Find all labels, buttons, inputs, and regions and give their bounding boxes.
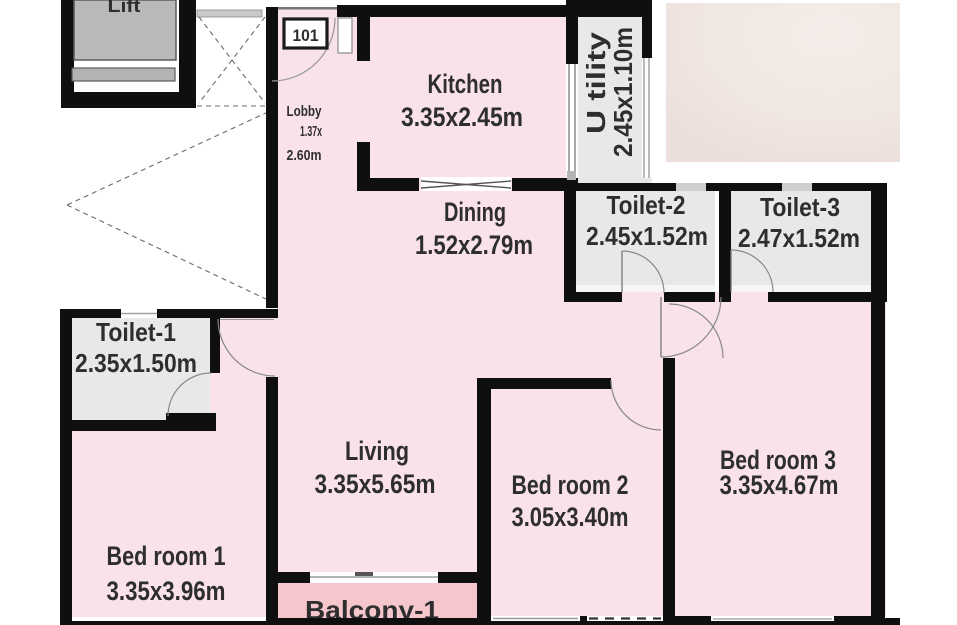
svg-text:3.35x2.45m: 3.35x2.45m	[401, 102, 523, 132]
svg-text:Toilet-3: Toilet-3	[760, 192, 840, 222]
svg-text:3.35x4.67m: 3.35x4.67m	[720, 470, 839, 500]
svg-text:Lobby: Lobby	[287, 103, 323, 120]
svg-text:2.45x1.52m: 2.45x1.52m	[586, 221, 708, 251]
svg-text:3.35x3.96m: 3.35x3.96m	[107, 576, 226, 606]
svg-text:2.60m: 2.60m	[287, 147, 322, 164]
svg-text:Toilet-1: Toilet-1	[96, 317, 176, 347]
svg-text:Toilet-2: Toilet-2	[607, 190, 686, 220]
svg-text:3.35x5.65m: 3.35x5.65m	[315, 469, 436, 499]
svg-text:1.52x2.79m: 1.52x2.79m	[415, 230, 533, 260]
svg-text:Kitchen: Kitchen	[428, 69, 503, 99]
svg-text:2.45x1.10m: 2.45x1.10m	[608, 27, 638, 157]
svg-text:Living: Living	[345, 436, 409, 466]
svg-text:U tility: U tility	[581, 31, 611, 134]
svg-text:Lift: Lift	[108, 0, 141, 16]
svg-text:3.05x3.40m: 3.05x3.40m	[512, 502, 629, 532]
svg-text:Bed room 1: Bed room 1	[107, 541, 226, 571]
svg-text:1.37x: 1.37x	[300, 123, 322, 140]
svg-text:Bed room 2: Bed room 2	[512, 470, 629, 500]
svg-text:101: 101	[293, 26, 319, 45]
svg-text:2.47x1.52m: 2.47x1.52m	[738, 223, 860, 253]
svg-text:Dining: Dining	[444, 197, 506, 227]
svg-text:2.35x1.50m: 2.35x1.50m	[75, 348, 197, 378]
